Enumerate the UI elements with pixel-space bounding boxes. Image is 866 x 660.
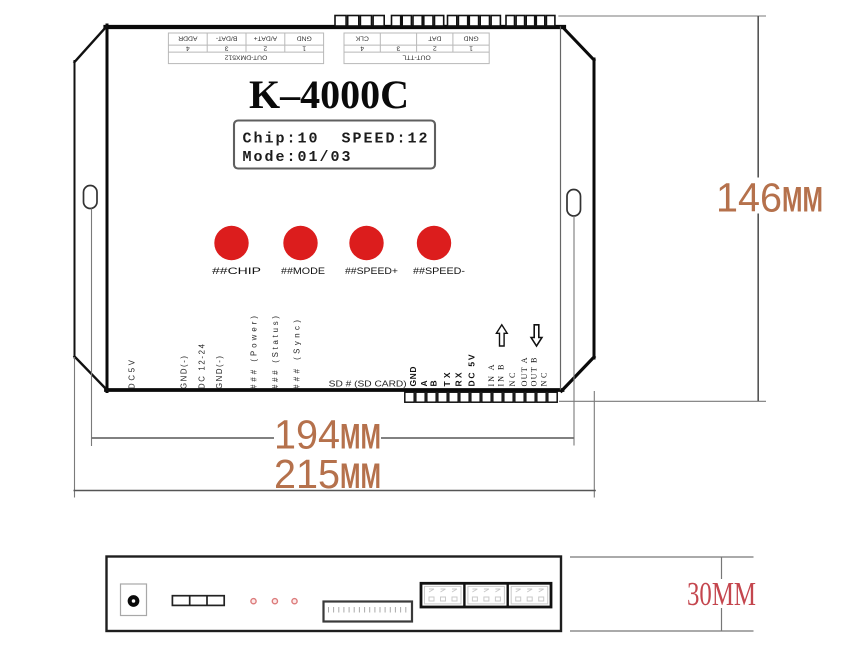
svg-text:SD # (SD CARD): SD # (SD CARD) xyxy=(329,379,407,389)
svg-text:B: B xyxy=(429,380,439,386)
svg-text:K–4000C: K–4000C xyxy=(249,72,409,117)
svg-text:4: 4 xyxy=(360,44,364,51)
svg-text:##CHIP: ##CHIP xyxy=(212,266,261,276)
svg-text:DAT: DAT xyxy=(428,35,441,42)
svg-text:IN B: IN B xyxy=(496,364,505,387)
svg-text:2: 2 xyxy=(263,44,267,51)
svg-text:### (Power): ### (Power) xyxy=(249,316,258,389)
svg-text:CLK: CLK xyxy=(355,35,369,42)
svg-text:GND(-): GND(-) xyxy=(215,356,224,389)
svg-text:4: 4 xyxy=(186,44,190,51)
svg-text:GND(-): GND(-) xyxy=(180,356,189,389)
svg-text:A: A xyxy=(419,380,429,386)
svg-text:3: 3 xyxy=(224,44,228,51)
svg-text:OUT B: OUT B xyxy=(529,357,538,387)
svg-text:DC 12-24: DC 12-24 xyxy=(197,343,206,389)
svg-text:DC5V: DC5V xyxy=(127,359,136,389)
svg-text:OUT-DMX512: OUT-DMX512 xyxy=(224,53,267,60)
svg-text:1: 1 xyxy=(302,44,306,51)
svg-text:IN A: IN A xyxy=(487,364,496,386)
svg-text:NC: NC xyxy=(508,372,517,387)
svg-text:ADDR: ADDR xyxy=(178,35,197,42)
svg-text:NC: NC xyxy=(539,372,548,387)
svg-text:TX: TX xyxy=(442,372,452,386)
svg-text:GND: GND xyxy=(297,35,312,42)
svg-text:##MODE: ##MODE xyxy=(281,266,325,276)
svg-text:30MM: 30MM xyxy=(687,576,756,613)
svg-text:##SPEED+: ##SPEED+ xyxy=(345,266,398,276)
svg-text:OUT A: OUT A xyxy=(520,357,529,386)
svg-text:A/DAT+: A/DAT+ xyxy=(254,35,278,42)
svg-text:##SPEED-: ##SPEED- xyxy=(413,266,465,276)
svg-text:### (Sync): ### (Sync) xyxy=(293,320,302,389)
svg-text:DC 5V: DC 5V xyxy=(467,354,477,386)
svg-text:Mode:01/03: Mode:01/03 xyxy=(243,149,353,166)
svg-text:Chip:10 SPEED:12: Chip:10 SPEED:12 xyxy=(243,131,430,148)
svg-text:1: 1 xyxy=(469,44,473,51)
svg-text:215MM: 215MM xyxy=(274,451,381,497)
svg-text:B/DAT-: B/DAT- xyxy=(216,35,237,42)
svg-text:2: 2 xyxy=(433,44,437,51)
svg-text:146MM: 146MM xyxy=(716,175,823,221)
svg-text:OUT-TTL: OUT-TTL xyxy=(402,53,431,60)
svg-text:RX: RX xyxy=(454,372,464,386)
svg-text:3: 3 xyxy=(396,44,400,51)
svg-text:### (Status): ### (Status) xyxy=(271,316,280,389)
svg-text:GND: GND xyxy=(463,35,478,42)
svg-text:GND: GND xyxy=(408,367,418,387)
